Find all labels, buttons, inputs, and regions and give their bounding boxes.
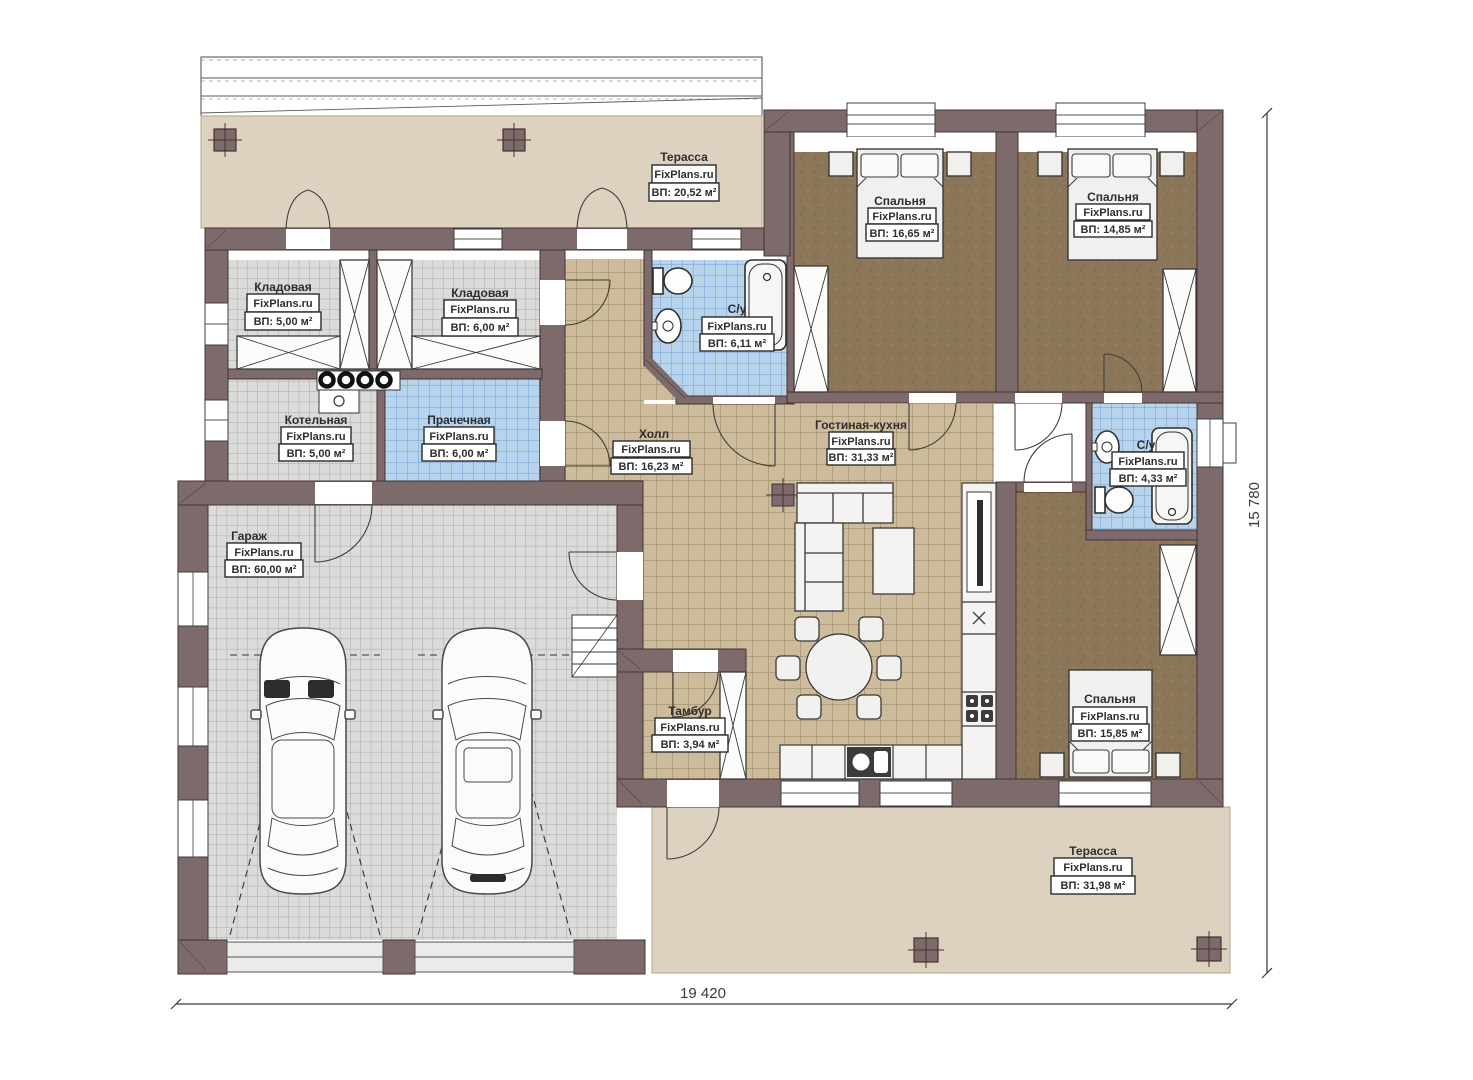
svg-text:ВП: 31,33 м²: ВП: 31,33 м² [829,452,894,464]
svg-text:Спальня: Спальня [1084,692,1136,706]
svg-text:FixPlans.ru: FixPlans.ru [253,298,312,310]
svg-text:ВП: 60,00 м²: ВП: 60,00 м² [232,564,297,576]
svg-text:ВП: 6,00 м²: ВП: 6,00 м² [451,322,510,334]
svg-text:ВП: 16,65 м²: ВП: 16,65 м² [870,228,935,240]
svg-text:FixPlans.ru: FixPlans.ru [660,722,719,734]
svg-text:FixPlans.ru: FixPlans.ru [450,304,509,316]
svg-text:FixPlans.ru: FixPlans.ru [1063,862,1122,874]
svg-text:Гараж: Гараж [231,529,267,543]
svg-text:Кладовая: Кладовая [254,280,311,294]
svg-text:FixPlans.ru: FixPlans.ru [1080,711,1139,723]
svg-text:ВП: 5,00 м²: ВП: 5,00 м² [254,316,313,328]
svg-text:FixPlans.ru: FixPlans.ru [872,211,931,223]
svg-text:Котельная: Котельная [285,413,348,427]
svg-text:FixPlans.ru: FixPlans.ru [234,547,293,559]
svg-text:FixPlans.ru: FixPlans.ru [1118,456,1177,468]
svg-text:ВП: 31,98 м²: ВП: 31,98 м² [1061,880,1126,892]
svg-text:Холл: Холл [639,427,669,441]
svg-text:ВП: 15,85 м²: ВП: 15,85 м² [1078,728,1143,740]
svg-text:Терасса: Терасса [1069,844,1117,858]
svg-text:19 420: 19 420 [680,985,726,1002]
svg-text:С/у: С/у [728,302,747,316]
svg-text:Кладовая: Кладовая [451,286,508,300]
svg-text:ВП: 16,23 м²: ВП: 16,23 м² [619,461,684,473]
svg-text:FixPlans.ru: FixPlans.ru [654,169,713,181]
svg-text:ВП: 4,33 м²: ВП: 4,33 м² [1119,473,1178,485]
svg-text:FixPlans.ru: FixPlans.ru [621,444,680,456]
svg-text:FixPlans.ru: FixPlans.ru [429,431,488,443]
svg-text:Спальня: Спальня [1087,190,1139,204]
svg-text:Тамбур: Тамбур [668,704,712,718]
svg-text:Терасса: Терасса [660,150,708,164]
svg-text:ВП: 3,94 м²: ВП: 3,94 м² [661,739,720,751]
svg-text:ВП: 6,00 м²: ВП: 6,00 м² [430,448,489,460]
svg-text:ВП: 14,85 м²: ВП: 14,85 м² [1081,224,1146,236]
svg-text:Гостиная-кухня: Гостиная-кухня [815,418,907,432]
svg-text:FixPlans.ru: FixPlans.ru [831,436,890,448]
svg-text:15 780: 15 780 [1246,482,1263,528]
svg-text:ВП: 6,11 м²: ВП: 6,11 м² [708,338,767,350]
svg-text:FixPlans.ru: FixPlans.ru [286,431,345,443]
svg-text:Спальня: Спальня [874,194,926,208]
svg-text:Прачечная: Прачечная [427,413,491,427]
svg-text:ВП: 5,00 м²: ВП: 5,00 м² [287,448,346,460]
svg-text:ВП: 20,52 м²: ВП: 20,52 м² [652,187,717,199]
svg-text:FixPlans.ru: FixPlans.ru [707,321,766,333]
svg-text:FixPlans.ru: FixPlans.ru [1083,207,1142,219]
svg-text:С/у: С/у [1137,438,1156,452]
